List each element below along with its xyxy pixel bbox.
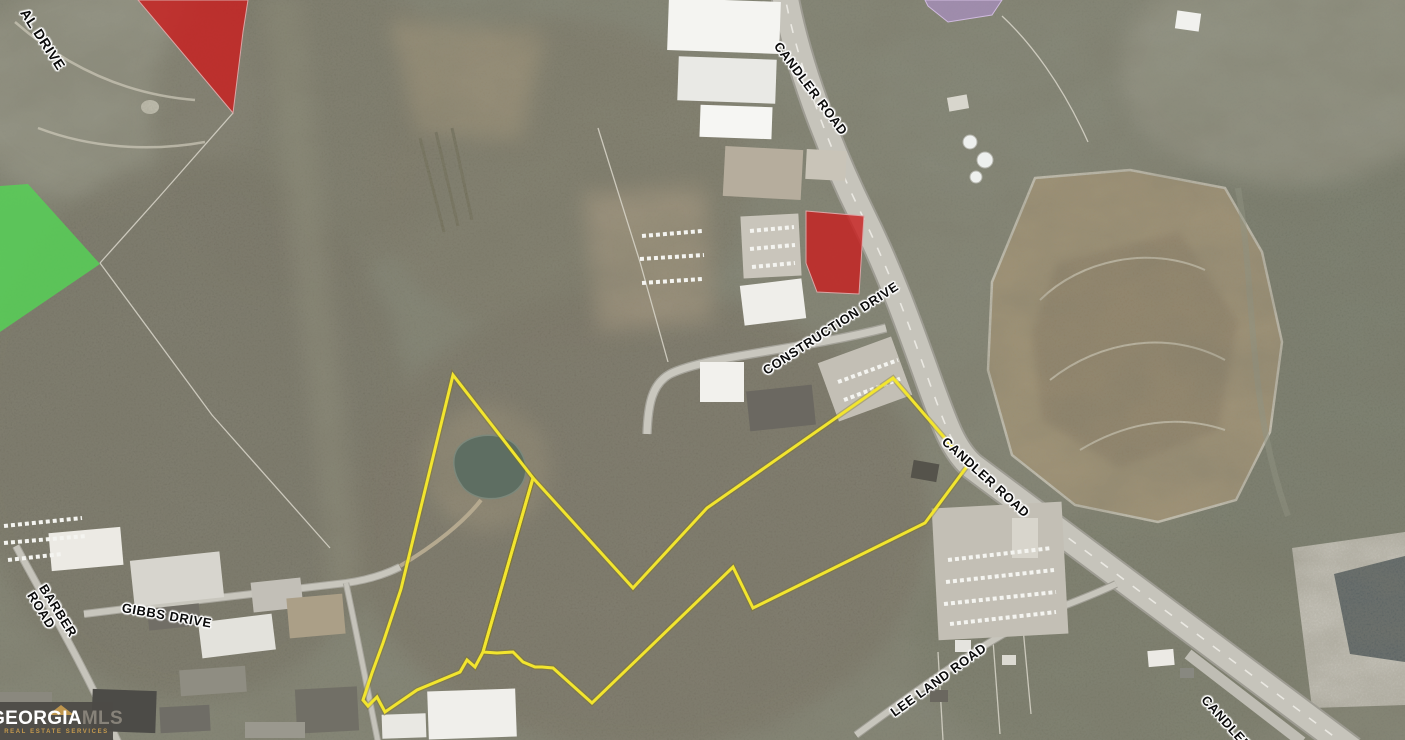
logo-tagline: REAL ESTATE SERVICES bbox=[4, 729, 109, 735]
logo-text-georgia: GEORGIA bbox=[0, 708, 82, 729]
georgiamls-watermark: GEORGIAMLS REAL ESTATE SERVICES bbox=[0, 702, 113, 740]
parcel-pond bbox=[454, 435, 526, 498]
aerial-parcel-map[interactable]: AL DRIVE CANDLER ROAD CONSTRUCTION DRIVE… bbox=[0, 0, 1405, 740]
logo-text-mls: MLS bbox=[82, 708, 123, 729]
logo-wordmark: GEORGIAMLS bbox=[0, 709, 123, 728]
overlay-parcel-red-candler bbox=[806, 211, 864, 294]
map-canvas bbox=[0, 0, 1405, 740]
